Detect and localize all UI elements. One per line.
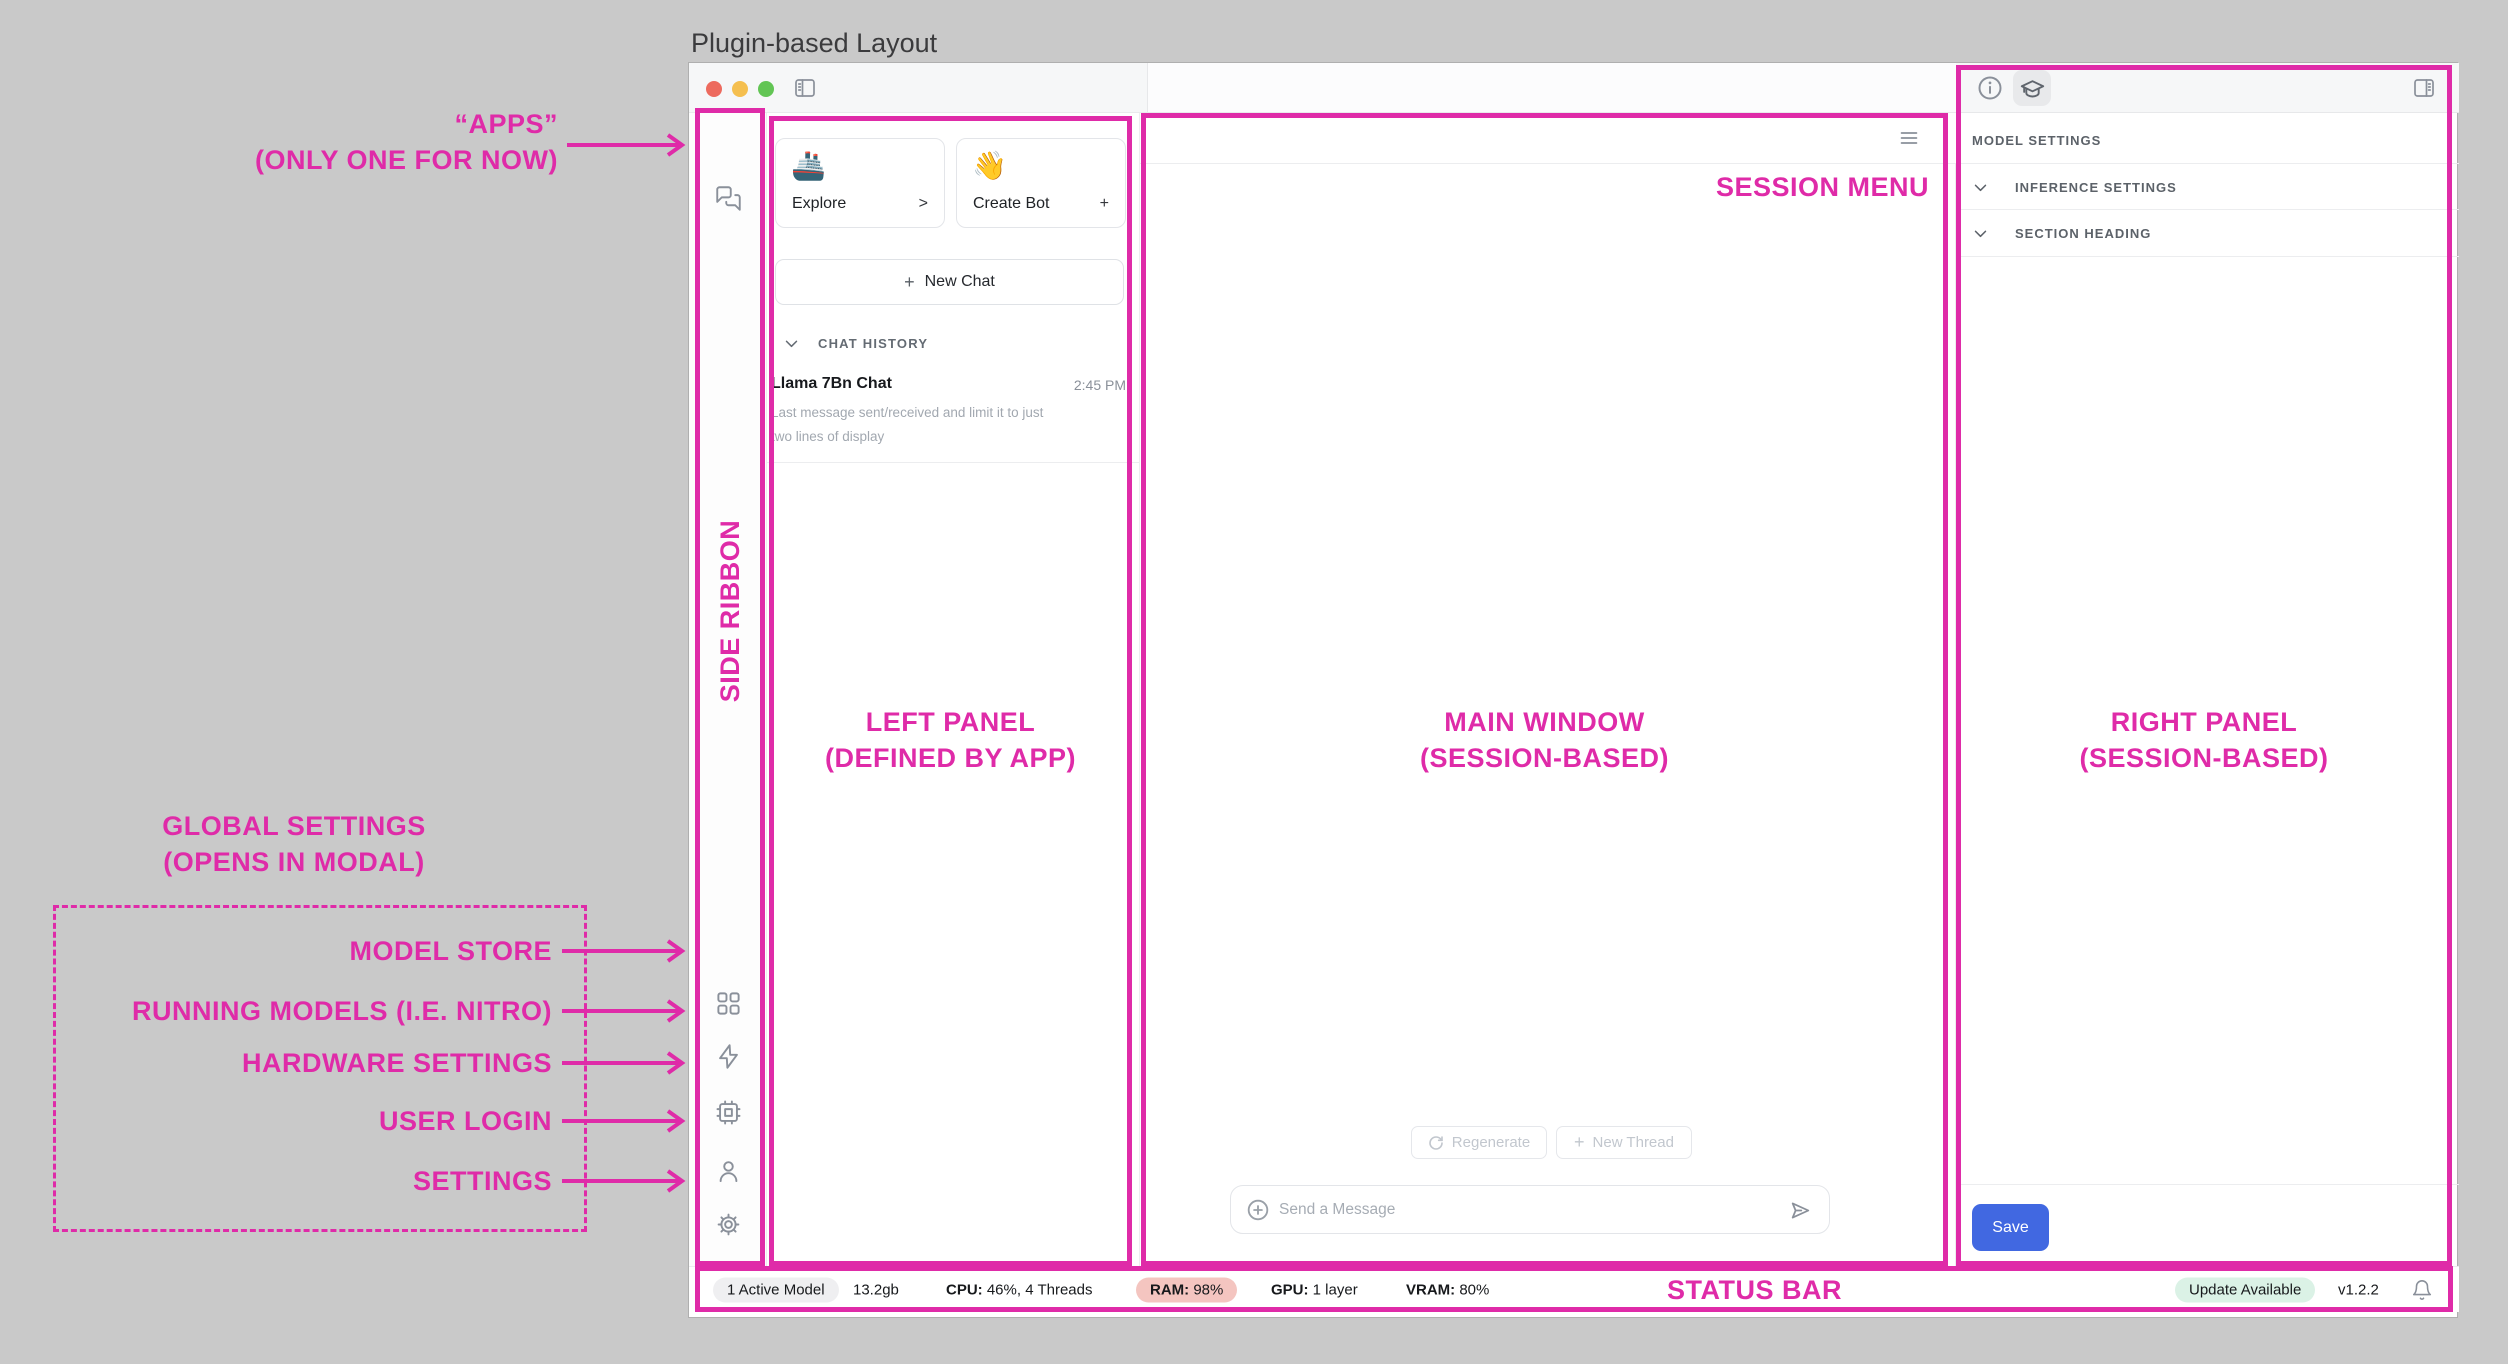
ram-stat-pill: RAM: 98% — [1136, 1277, 1237, 1302]
chat-bubbles-icon[interactable] — [715, 185, 742, 212]
page-title: Plugin-based Layout — [691, 28, 937, 59]
plus-glyph: + — [904, 272, 915, 293]
minimize-button[interactable] — [732, 81, 748, 97]
chat-item-preview-line1: Last message sent/received and limit it … — [771, 401, 1043, 425]
zoom-button[interactable] — [758, 81, 774, 97]
divider — [1956, 1184, 2459, 1185]
active-model-pill[interactable]: 1 Active Model — [713, 1277, 839, 1302]
chevron-down-icon — [783, 335, 800, 352]
inference-settings-row[interactable]: INFERENCE SETTINGS — [1972, 179, 2177, 196]
apps-arrow — [565, 131, 690, 159]
right-panel-header — [1956, 63, 2459, 113]
inference-settings-label: INFERENCE SETTINGS — [2015, 180, 2177, 195]
grid-icon[interactable] — [715, 990, 742, 1017]
ship-emoji: 🚢 — [791, 152, 826, 180]
model-settings-title: MODEL SETTINGS — [1972, 133, 2101, 148]
main-window-annotation-box — [1141, 113, 1948, 1266]
create-bot-card[interactable]: 👋 Create Bot + — [956, 138, 1126, 228]
plus-glyph: + — [1574, 1132, 1585, 1153]
app-window: 👋 🚢 Explore > 👋 Create Bot + + New Chat … — [688, 62, 2458, 1318]
chip-icon[interactable] — [715, 1099, 742, 1126]
new-thread-label: New Thread — [1593, 1134, 1674, 1151]
sidebar-toggle-icon[interactable] — [792, 76, 818, 100]
gpu-stat: GPU: 1 layer — [1271, 1281, 1358, 1298]
status-bar: 1 Active Model 13.2gb CPU: 46%, 4 Thread… — [689, 1266, 2459, 1312]
gpu-label: GPU: — [1271, 1281, 1309, 1298]
running-models-arrow — [560, 997, 690, 1025]
chat-history-label: CHAT HISTORY — [818, 336, 928, 351]
chevron-down-icon — [1972, 225, 1989, 242]
divider — [1956, 256, 2459, 257]
vram-stat: VRAM: 80% — [1406, 1281, 1489, 1298]
cpu-value: 46%, 4 Threads — [987, 1281, 1093, 1298]
annotation-hardware-settings: HARDWARE SETTINGS — [60, 1045, 552, 1081]
chat-item-title: Llama 7Bn Chat — [771, 375, 892, 393]
panel-toggle-icon[interactable] — [2411, 76, 2437, 100]
main-window-annotation: MAIN WINDOW(SESSION-BASED) — [1141, 704, 1948, 776]
left-panel-annotation: LEFT PANEL(DEFINED BY APP) — [769, 704, 1132, 776]
user-icon[interactable] — [715, 1158, 742, 1185]
chat-item-time: 2:45 PM — [1074, 377, 1126, 393]
chat-history-header[interactable]: CHAT HISTORY — [783, 335, 928, 352]
chat-history-item[interactable]: Llama 7Bn Chat 2:45 PM Last message sent… — [767, 368, 1140, 462]
explore-card-label: Explore — [792, 195, 846, 213]
user-login-arrow — [560, 1107, 690, 1135]
titlebar-right-section — [1147, 63, 1956, 112]
version-label: v1.2.2 — [2338, 1281, 2379, 1298]
chat-item-preview-line2: two lines of display — [771, 425, 884, 449]
right-panel-annotation: RIGHT PANEL(SESSION-BASED) — [1956, 704, 2452, 776]
gear-icon[interactable] — [715, 1211, 742, 1238]
close-button[interactable] — [706, 81, 722, 97]
section-heading-label: SECTION HEADING — [2015, 226, 2151, 241]
memory-usage: 13.2gb — [853, 1281, 899, 1298]
side-ribbon-annotation: SIDE RIBBON — [712, 461, 748, 761]
divider — [1956, 209, 2459, 210]
vram-value: 80% — [1459, 1281, 1489, 1298]
divider — [1139, 113, 1140, 1266]
create-bot-card-label: Create Bot — [973, 195, 1049, 213]
new-chat-label: New Chat — [925, 273, 995, 291]
update-available-pill[interactable]: Update Available — [2175, 1277, 2315, 1302]
explore-card[interactable]: 🚢 Explore > — [775, 138, 945, 228]
cpu-stat: CPU: 46%, 4 Threads — [946, 1281, 1092, 1298]
wave-emoji: 👋 — [972, 152, 1007, 180]
bell-icon[interactable] — [2411, 1279, 2433, 1301]
annotation-running-models: RUNNING MODELS (I.E. NITRO) — [60, 993, 552, 1029]
send-icon[interactable] — [1788, 1198, 1813, 1223]
settings-arrow — [560, 1167, 690, 1195]
regenerate-button[interactable]: Regenerate — [1411, 1126, 1547, 1159]
apps-annotation: “APPS”(ONLY ONE FOR NOW) — [130, 106, 558, 178]
session-menu-annotation: SESSION MENU — [1629, 169, 1929, 205]
annotation-model-store: MODEL STORE — [60, 933, 552, 969]
graduation-cap-icon[interactable] — [2019, 75, 2046, 102]
message-input-container — [1230, 1185, 1830, 1234]
vram-label: VRAM: — [1406, 1281, 1455, 1298]
hardware-settings-arrow — [560, 1049, 690, 1077]
regenerate-label: Regenerate — [1452, 1134, 1530, 1151]
global-settings-annotation: GLOBAL SETTINGS(OPENS IN MODAL) — [94, 808, 494, 880]
new-chat-button[interactable]: + New Chat — [775, 259, 1124, 305]
new-thread-button[interactable]: + New Thread — [1556, 1126, 1692, 1159]
annotation-user-login: USER LOGIN — [60, 1103, 552, 1139]
design-canvas: Plugin-based Layout — [0, 0, 2508, 1364]
model-store-arrow — [560, 937, 690, 965]
plus-glyph: + — [1100, 195, 1109, 213]
section-heading-row[interactable]: SECTION HEADING — [1972, 225, 2151, 242]
cpu-label: CPU: — [946, 1281, 983, 1298]
refresh-icon — [1428, 1135, 1444, 1151]
hamburger-menu-icon[interactable] — [1898, 128, 1920, 148]
chevron-right-glyph: > — [919, 195, 928, 213]
info-icon[interactable] — [1976, 74, 2004, 102]
chevron-down-icon — [1972, 179, 1989, 196]
divider — [1955, 113, 1956, 1266]
divider — [767, 462, 1140, 463]
ram-value: 98% — [1193, 1281, 1223, 1298]
message-input[interactable] — [1279, 1186, 1759, 1233]
save-button[interactable]: Save — [1972, 1204, 2049, 1251]
plus-circle-icon[interactable] — [1245, 1197, 1271, 1223]
gpu-value: 1 layer — [1313, 1281, 1358, 1298]
session-header — [1140, 113, 1956, 164]
right-panel-annotation-box — [1956, 65, 2452, 1266]
annotation-settings: SETTINGS — [60, 1163, 552, 1199]
lightning-icon[interactable] — [715, 1043, 742, 1070]
status-bar-annotation: STATUS BAR — [1667, 1272, 1842, 1308]
ram-label: RAM: — [1150, 1281, 1189, 1298]
divider — [1956, 163, 2459, 164]
